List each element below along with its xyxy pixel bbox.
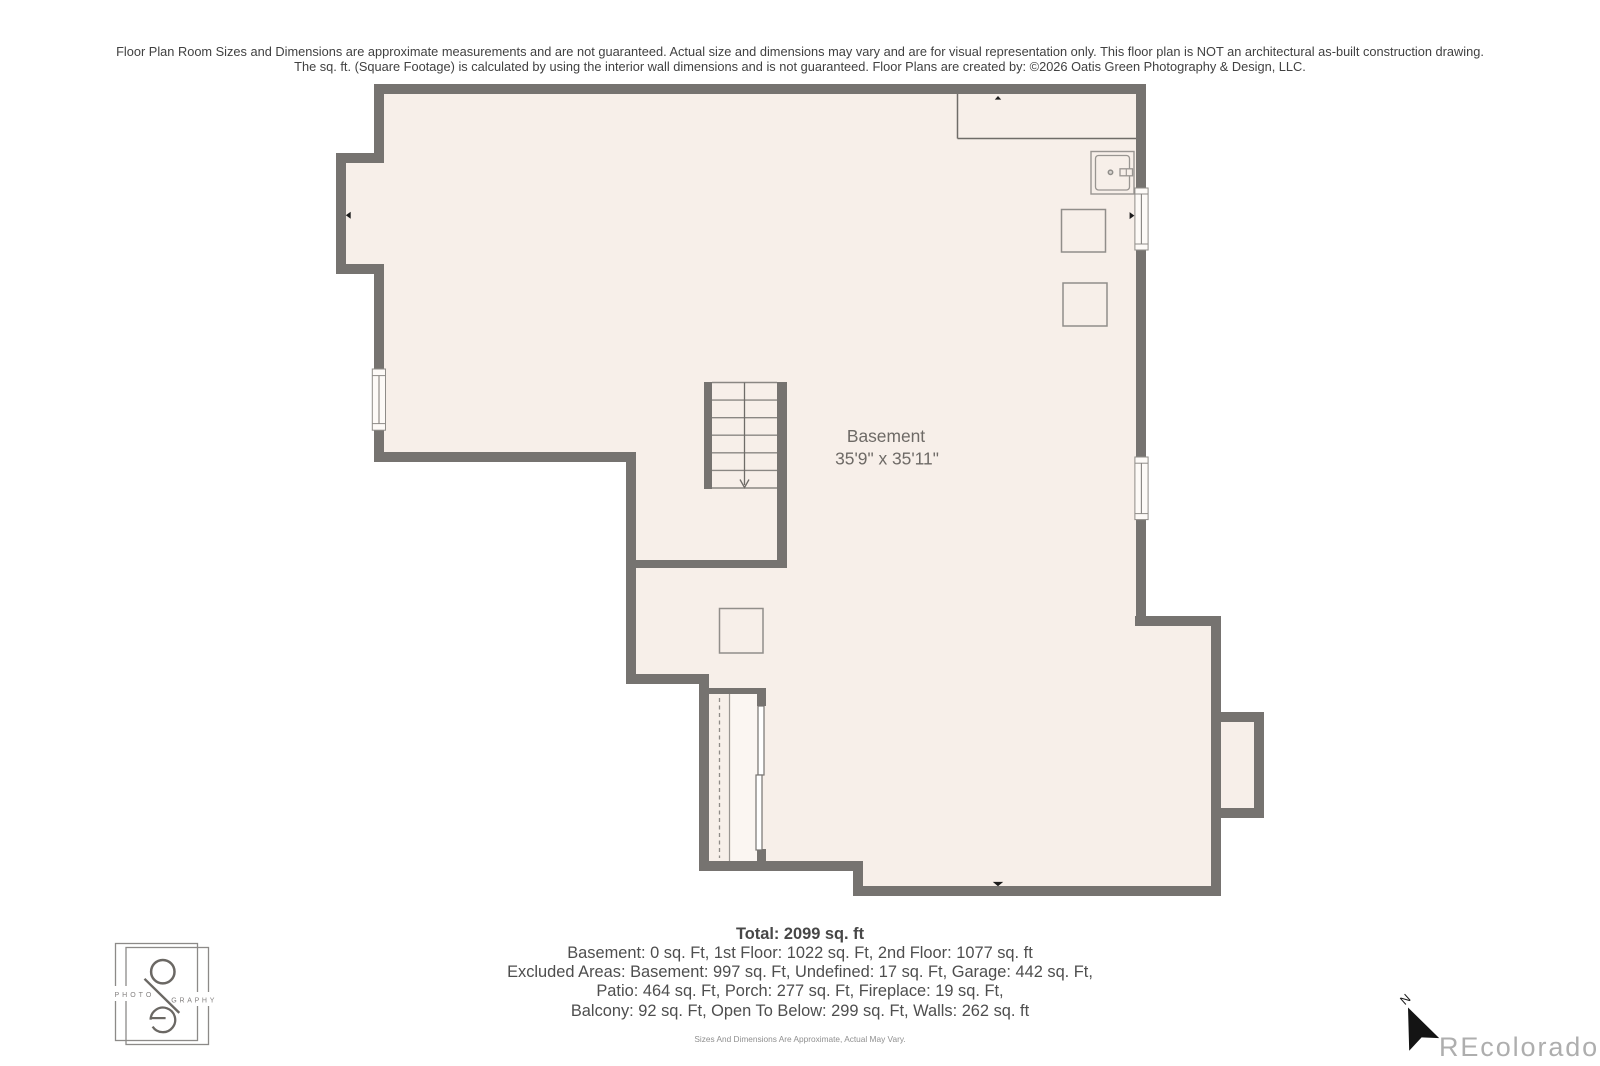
svg-text:35'9" x 35'11": 35'9" x 35'11": [835, 449, 939, 469]
svg-text:Basement: Basement: [847, 426, 925, 446]
